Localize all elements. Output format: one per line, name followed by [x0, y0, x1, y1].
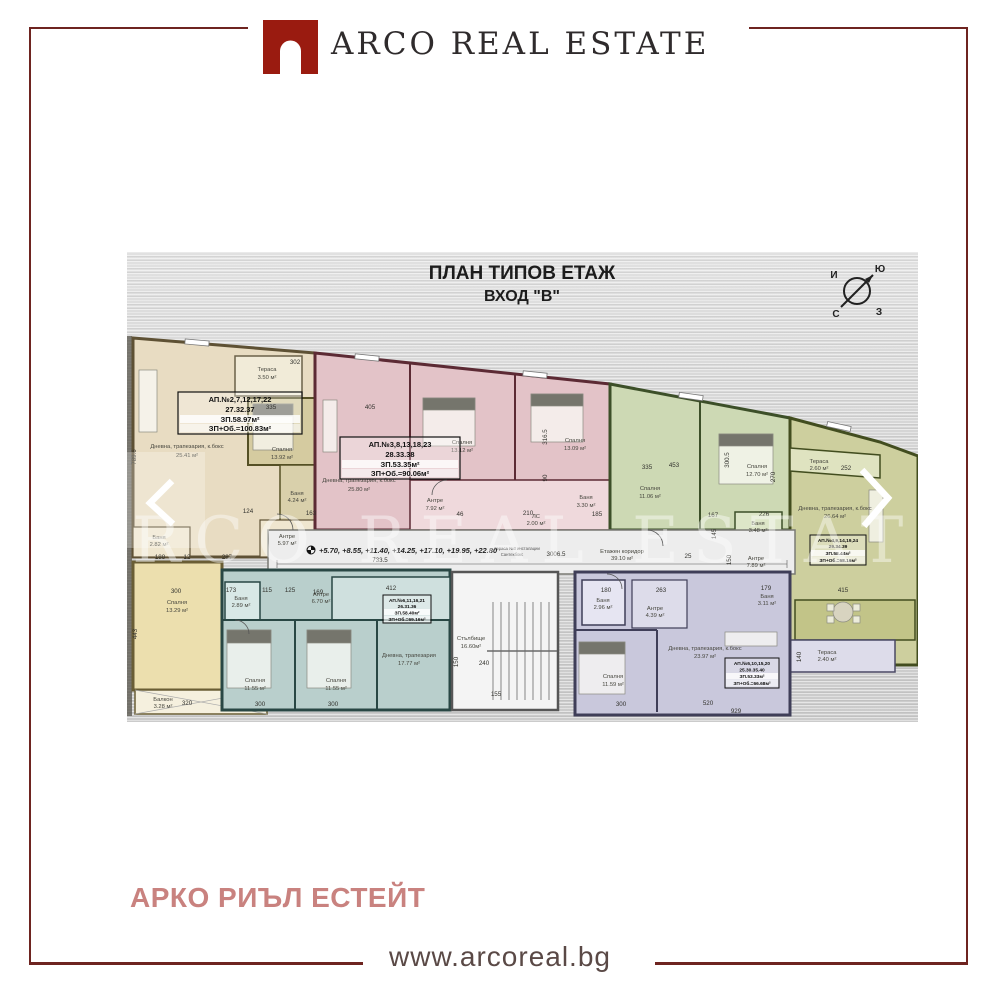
apartment-zp: ЗП.58.97м²: [221, 415, 260, 424]
apartment-id: АП.№2,7,12,17,22: [209, 395, 272, 404]
dim-label: 240: [479, 660, 490, 667]
room-name: Спалня: [603, 674, 623, 680]
stairs-label: Стълбище: [457, 636, 485, 642]
room-area: 2.60 м²: [810, 466, 829, 472]
dim-label: 169: [313, 589, 324, 596]
dim-label: 335: [266, 404, 277, 411]
room-name: Спалня: [326, 678, 346, 684]
dim-label: 453: [669, 462, 680, 469]
room-name: Тераса: [817, 650, 837, 656]
frame-border-top-left: [29, 27, 248, 29]
room-area: 13.92 м²: [271, 455, 293, 461]
apartment-floors: 26.31.36: [398, 604, 417, 610]
dim-label: 405: [365, 404, 376, 411]
dim-label: 270: [770, 471, 777, 482]
room-area: 11.59 м²: [602, 682, 624, 688]
logo-wordmark: ARCO REAL ESTATE: [331, 26, 751, 62]
apartment-total: ЗП+Об.=66.68м²: [733, 680, 771, 687]
room-area: 3.28 м²: [154, 704, 173, 710]
room-area: 11.06 м²: [639, 494, 661, 500]
apartment-zp: ЗП.58.40м²: [395, 611, 420, 617]
compass-rose: И Ю С З: [830, 264, 885, 320]
room-area: 2.89 м²: [232, 603, 251, 609]
room-name: Баня: [234, 596, 247, 602]
room-area: 3.11 м²: [758, 601, 776, 607]
room-name: Дневна, трапезария, к.бокс: [150, 444, 223, 450]
apartment-floors: 25.30.35.40: [739, 668, 765, 674]
room-name: Дневна, трапезария, к.бокс: [668, 646, 741, 652]
room-area: 11.55 м²: [244, 686, 266, 692]
floor-plan-image: ПЛАН ТИПОВ ЕТАЖ ВХОД "В" И Ю С З: [127, 252, 918, 722]
apartment-floors: 27.32.37: [225, 405, 254, 414]
dim-label: 263: [656, 587, 667, 594]
apartment-id: АП.№3,8,13,18,23: [369, 440, 432, 449]
room-name: Спалня: [245, 678, 265, 684]
room-area: 12.70 м²: [746, 472, 768, 478]
dim-label: 125: [285, 587, 296, 594]
room-area: 2.40 м²: [818, 657, 837, 663]
dim-label: 335: [642, 464, 653, 471]
dim-label: 180: [601, 587, 612, 594]
room-area: 23.97 м²: [694, 654, 716, 660]
apartment-floors: 28.33.38: [385, 450, 414, 459]
dim-label: 173: [226, 587, 237, 594]
dim-label: 300: [328, 701, 339, 708]
dim-label: 252: [841, 465, 852, 472]
room-area: 3.50 м²: [258, 375, 277, 381]
dim-label: 443: [132, 628, 139, 639]
carousel-left-band: [127, 452, 205, 548]
dim-label: 155: [491, 691, 502, 698]
frame-border-top-right: [749, 27, 968, 29]
dim-label: 415: [838, 587, 849, 594]
room-name: Дневна, трапезария: [382, 653, 436, 659]
room-name: Баня: [596, 598, 609, 604]
room-name: Спалня: [167, 600, 187, 606]
room-name: Тераса: [809, 459, 829, 465]
dim-label: 929: [731, 708, 742, 715]
room-area: 6.70 м²: [312, 599, 331, 605]
dim-label: 179: [761, 585, 772, 592]
compass-east: И: [830, 270, 837, 281]
arco-arch-logo-icon: [263, 20, 318, 74]
frame-border-left: [29, 27, 31, 965]
dim-label: 316.5: [542, 429, 549, 445]
room-area: 13.09 м²: [564, 446, 586, 452]
room-area: 25.80 м²: [348, 487, 370, 493]
room-name: Спалня: [565, 438, 585, 444]
listing-page: { "header": {"logo_text": "ARCO REAL EST…: [0, 0, 1000, 999]
apartment-id: АП.№5,10,15,20: [734, 661, 771, 667]
room-area: 2.96 м²: [594, 605, 613, 611]
apartment-id: АП.№6,11,16,21: [389, 598, 425, 604]
room-area: 13.29 м²: [166, 608, 188, 614]
website-url: www.arcoreal.bg: [0, 941, 1000, 973]
apartment-zp: ЗП.53.35м²: [381, 460, 420, 469]
dim-label: 300: [616, 701, 627, 708]
room-name: Спалня: [272, 447, 292, 453]
dim-label: 300: [171, 588, 182, 595]
apartment-zp: ЗП.53.33м²: [740, 674, 765, 680]
room-name: Баня: [579, 495, 592, 501]
watermark-text: ARCO REAL ESTATE: [127, 504, 918, 578]
apartment-total: ЗП+Об.=90.06м²: [371, 469, 430, 478]
apartment-total: ЗП+Об.=100.83м²: [209, 424, 272, 433]
compass-west: З: [876, 307, 882, 318]
dim-label: 150: [453, 656, 460, 667]
olive-bottom-terrace: [788, 640, 895, 672]
dim-label: 320: [182, 700, 193, 707]
dim-label: 302: [290, 359, 301, 366]
dim-label: 115: [262, 587, 272, 594]
room-area: 17.77 м²: [398, 661, 420, 667]
dim-label: 300.5: [724, 452, 731, 468]
room-name: Спалня: [747, 464, 767, 470]
dim-label: 90: [542, 474, 549, 481]
room-name: Баня: [760, 594, 773, 600]
room-name: Балкон: [153, 697, 172, 703]
compass-north: С: [832, 309, 839, 320]
dim-label: 300: [255, 701, 266, 708]
room-name: Баня: [290, 491, 303, 497]
dim-label: 412: [386, 585, 397, 592]
room-name: Спалня: [640, 486, 660, 492]
room-area: 4.39 м²: [646, 613, 665, 619]
plan-title: ПЛАН ТИПОВ ЕТАЖ: [429, 263, 616, 284]
compass-south: Ю: [875, 264, 885, 275]
room-area: 11.55 м²: [325, 686, 347, 692]
room-name: Антре: [647, 606, 663, 612]
dim-label: 520: [703, 700, 714, 707]
dim-label: 140: [796, 651, 803, 662]
apartment-total: ЗП+Об.=69.16м²: [388, 616, 426, 623]
stairs-area: 16.60м²: [461, 644, 481, 650]
frame-border-right: [966, 27, 968, 965]
apartment-yellow: [133, 562, 222, 690]
brand-name-cyrillic: АРКО РИЪЛ ЕСТЕЙТ: [130, 882, 425, 914]
plan-subtitle: ВХОД "В": [484, 288, 560, 305]
room-name: Тераса: [257, 367, 277, 373]
